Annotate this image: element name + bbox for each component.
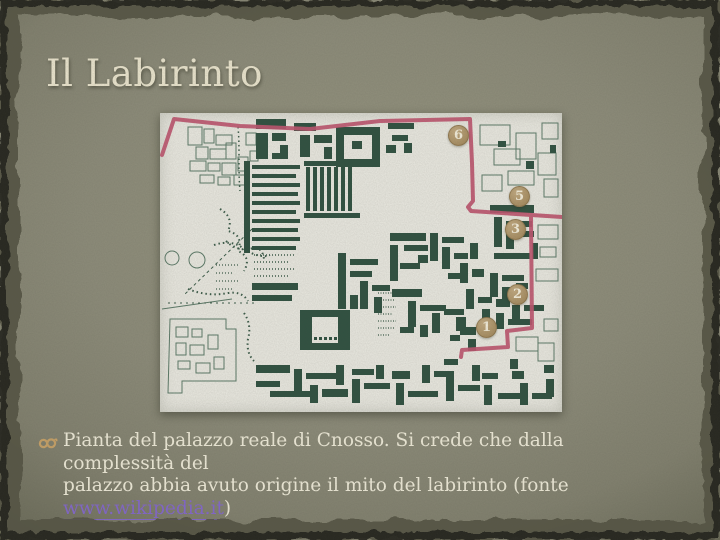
wikipedia-link[interactable]: www.wikipedia.it [63,498,224,520]
route-marker-1: 1 [476,317,497,338]
route-marker-5: 5 [509,186,530,207]
slide-title: Il Labirinto [46,52,263,95]
caption-line-1: Pianta del palazzo reale di Cnosso. Si c… [63,430,623,475]
route-marker-2: 2 [507,284,528,305]
caption-line-2: palazzo abbia avuto origine il mito del … [63,475,623,498]
caption-line-3: www.wikipedia.it) [63,498,623,521]
knossos-plan-drawing [160,113,562,412]
ribbon-bullet-icon [38,434,58,449]
caption-suffix: ) [224,498,231,519]
slide-canvas: Il Labirinto [0,0,720,540]
route-marker-3: 3 [505,219,526,240]
route-marker-6: 6 [448,125,469,146]
knossos-plan-image: 6 5 3 2 1 [160,113,562,412]
caption-text: Pianta del palazzo reale di Cnosso. Si c… [38,430,623,520]
caption-block: Pianta del palazzo reale di Cnosso. Si c… [38,430,623,520]
